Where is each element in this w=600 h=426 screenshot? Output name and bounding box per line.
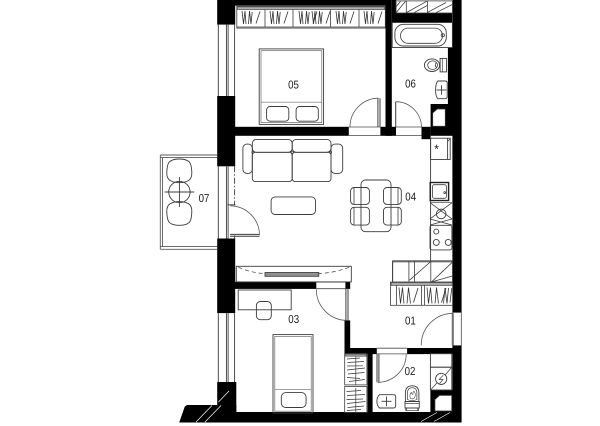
svg-text:07: 07: [199, 193, 210, 205]
svg-text:01: 01: [405, 315, 416, 327]
svg-text:03: 03: [288, 314, 299, 326]
svg-text:06: 06: [405, 78, 416, 90]
svg-text:*: *: [434, 142, 439, 156]
svg-text:04: 04: [405, 191, 416, 203]
svg-text:02: 02: [405, 366, 416, 378]
svg-text:05: 05: [288, 79, 299, 91]
